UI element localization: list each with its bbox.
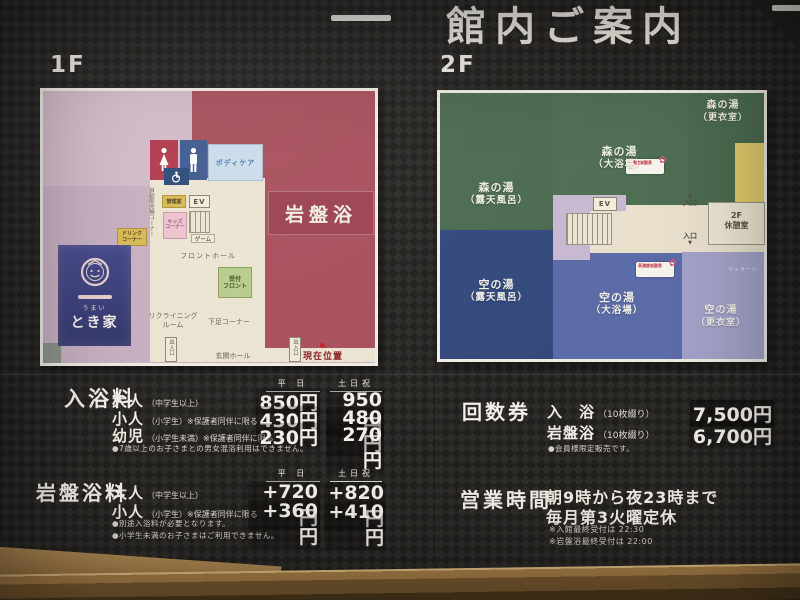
bodycare-sign-label: ボディケア	[216, 158, 256, 168]
hours-note-1: ※入館最終受付は 22:30	[549, 524, 644, 535]
ganbanyoku-label: 岩盤浴	[285, 200, 357, 227]
bodycare-sign: ボディケア	[208, 144, 263, 181]
kids-corner: キッズ コーナー	[163, 212, 187, 239]
elevator-2f: EV	[593, 197, 617, 211]
stairs-2f	[566, 213, 612, 245]
reclining-line2: ルーム	[146, 321, 200, 330]
reception-front: 受付 フロント	[218, 267, 252, 298]
bath-infant-weekend: 270円	[326, 424, 384, 473]
label-line: （更衣室）	[682, 113, 764, 124]
title-dash-right	[772, 5, 800, 11]
elevator-1f: EV	[189, 195, 210, 208]
tokiya-logo-bar	[78, 295, 112, 299]
ganban-footnote-1: ●別途入浴料が必要となります。	[112, 518, 230, 529]
label-line: 空の湯	[445, 278, 548, 292]
massage-label: マッサージ	[728, 266, 758, 273]
drink-corner: ドリンク コーナー	[117, 228, 147, 246]
sora-daiyokujo-label: 空の湯 （大浴場）	[558, 291, 676, 317]
mori-daiyokujo-label: 森の湯 （大浴場）	[562, 145, 677, 171]
stairs-1f	[189, 211, 210, 233]
label-line: 空の湯	[558, 291, 676, 305]
admin-room-label: 管理室	[166, 198, 181, 205]
floor1-label: 1F	[50, 52, 86, 78]
tokiya-restaurant: うまい とき家	[58, 245, 131, 346]
current-location-dot	[320, 343, 325, 348]
tickets-footnote: ●会員様限定販売です。	[548, 443, 634, 454]
rest-room-line1: 2F	[709, 211, 764, 221]
label-line: 森の湯	[445, 181, 548, 195]
ticket-row-ganban: 岩盤浴 （10枚綴り）	[547, 422, 654, 443]
tickets-heading: 回数券	[462, 396, 531, 425]
ganban-col-weekday: 平 日	[266, 468, 320, 482]
board-title: 館内ご案内	[446, 0, 691, 52]
fee-note: （中学生以上）	[147, 490, 203, 501]
area-corner-square	[43, 343, 61, 363]
exit-left: 出入口	[165, 337, 177, 362]
reception-label2: フロント	[219, 283, 251, 290]
floor2-label: 2F	[440, 52, 476, 78]
ganban-col-weekend: 土日祝	[330, 468, 382, 482]
mori-rotenburo-label: 森の湯 （露天風呂）	[445, 181, 548, 207]
drink-line2: コーナー	[118, 238, 146, 244]
arrow-down-icon: ▼	[678, 241, 702, 246]
title-dash-left	[331, 15, 391, 21]
guide-board: 館内ご案内 1F 2F	[0, 0, 800, 600]
rest-room-line2: 休憩室	[709, 221, 764, 231]
exit-right: 出入口	[289, 337, 301, 362]
floor1-map: ボディケア 岩盤浴 管理室 EV キッズ コーナー ゲーム フロントホール 受付…	[40, 88, 378, 366]
ticket-note: （10枚綴り）	[598, 428, 654, 441]
hours-heading: 営業時間	[460, 484, 552, 513]
ticket-note: （10枚綴り）	[598, 407, 654, 420]
tokiya-subtitle: うまい	[58, 303, 131, 312]
tokiya-name: とき家	[58, 312, 131, 332]
panel-divider-horizontal	[0, 374, 800, 375]
ganban-footnote-2: ●小学生未満のお子さまはご利用できません。	[112, 530, 279, 541]
tokiya-logo	[78, 255, 112, 289]
ticket-row-bath: 入 浴 （10枚綴り）	[547, 401, 654, 422]
fee-name: 大人	[112, 482, 144, 503]
ticket-ganban-price: 6,700円	[690, 422, 774, 449]
label-line: （大浴場）	[562, 159, 677, 171]
ticket-name: 岩盤浴	[547, 422, 595, 443]
kids-corner-label2: コーナー	[164, 225, 186, 230]
label-line: 森の湯	[682, 100, 764, 113]
bath-footnote: ●7歳以上のお子さまとの男女混浴利用はできません。	[112, 443, 308, 454]
sora-rotenburo-label: 空の湯 （露天風呂）	[445, 278, 548, 304]
mori-koishitsu-label: 森の湯 （更衣室）	[682, 100, 764, 124]
ganbanyoku-sign: 岩盤浴	[268, 191, 374, 235]
ganban-row-adult: 大人 （中学生以上）	[112, 482, 203, 503]
reclining-line1: リクライニング	[146, 312, 200, 321]
hours-note-2: ※岩盤浴最終受付は 22:00	[549, 536, 653, 547]
admin-room: 管理室	[162, 195, 186, 208]
label-line: 森の湯	[562, 145, 677, 159]
floor2-map: EV 2F 休憩室 ▲ 入口 入口 ▼ 高濃度炭酸泉 ✿ 高濃度炭酸泉 ✿ マッ…	[437, 90, 767, 362]
shoe-corner-label: 下足コーナー	[201, 317, 257, 327]
accessible-restroom-area	[164, 168, 189, 185]
ganban-child-weekday: +360円	[248, 500, 320, 549]
panel-divider-vertical	[436, 378, 437, 563]
reception-label1: 受付	[219, 276, 251, 283]
entrance-top: ▲ 入口	[678, 193, 702, 208]
flower-icon: ✿	[669, 258, 677, 269]
elevator-1f-label: EV	[193, 198, 205, 206]
entrance-top-label: 入口	[678, 198, 702, 208]
sora-koishitsu-label: 空の湯 （更衣室）	[678, 305, 764, 329]
tansansen-badge-sora: 高濃度炭酸泉 ✿	[636, 262, 674, 277]
rest-room-2f: 2F 休憩室	[708, 202, 765, 245]
label-line: （露天風呂）	[445, 292, 548, 304]
mori-rotenburo-area	[440, 93, 553, 230]
front-hall-label: フロントホール	[168, 251, 248, 261]
wheelchair-icon	[171, 171, 182, 183]
label-line: （露天風呂）	[445, 195, 548, 207]
current-location-label: 現在位置	[303, 349, 343, 362]
game-corner-label: ゲーム	[195, 235, 211, 243]
game-corner: ゲーム	[191, 234, 215, 243]
label-line: （大浴場）	[558, 305, 676, 317]
reclining-room-label: リクライニング ルーム	[146, 312, 200, 330]
label-line: 空の湯	[678, 305, 764, 318]
entrance-bottom: 入口 ▼	[678, 231, 702, 246]
vending-corner-label: 自動販売機コーナー	[147, 187, 155, 262]
ganban-child-weekend: +410円	[324, 501, 386, 550]
ticket-name: 入 浴	[547, 401, 595, 422]
label-line: （更衣室）	[678, 318, 764, 329]
elevator-2f-label: EV	[599, 200, 611, 208]
male-restroom-icon	[188, 147, 199, 173]
entrance-hall-label: 玄関ホール	[206, 351, 260, 361]
